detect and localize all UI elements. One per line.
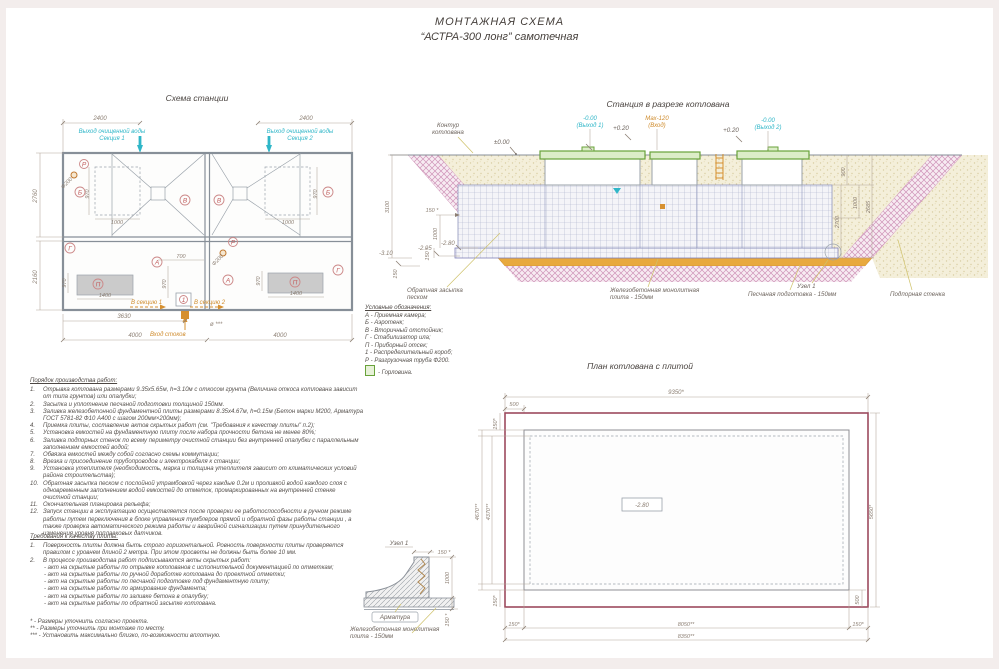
to-section1-label: В секцию 1 — [131, 300, 162, 306]
quality-bullet: - акт на скрытые работы по отрывке котло… — [30, 565, 364, 572]
footnote: *** - Установить максимально близко, по-… — [30, 633, 364, 640]
bottom-hatch-band — [505, 266, 865, 282]
legend: Условные обозначения: А - Приемная камер… — [365, 305, 565, 378]
slab-label-2: плита - 150мм — [610, 294, 654, 301]
lid-left-2 — [650, 152, 700, 159]
sand-prep-label: Песчаная подготовка - 150мм — [748, 291, 837, 298]
node-dim-150-top: 150 * — [438, 550, 452, 556]
legend-item: В - Вторичный отстойник; — [365, 328, 565, 336]
dim-3630: 3630 — [117, 314, 131, 320]
dim-150-bl: 150* — [493, 594, 499, 606]
pit-cross-section-drawing: Станция в разрезе котлована — [379, 99, 988, 301]
dim-500-top: 500 — [509, 402, 519, 408]
quality-item: 2.В процессе производства работ подписыв… — [30, 558, 364, 565]
lid-left-1 — [540, 151, 645, 159]
pit-plan-title: План котлована с плитой — [587, 361, 693, 371]
outlet1-label-line1: Выход очищенной воды — [79, 128, 146, 135]
procedure-step: 9.Установка утеплителя (необходимость, м… — [30, 466, 364, 480]
level-p020-left: +0.20 — [613, 125, 629, 132]
dim-970-tl: 970 — [85, 188, 91, 198]
dim-4670: 4670** — [475, 503, 481, 520]
dim-4000-right: 4000 — [273, 333, 287, 339]
dim-2760: 2760 — [33, 189, 39, 204]
riser-left-2 — [652, 159, 697, 185]
footnote: ** - Размеры уточнить при монтаже по мес… — [30, 626, 364, 633]
dim-970-center: 970 — [162, 278, 168, 288]
procedure-step: 2.Засыпка и уплотнение песчаной подготов… — [30, 402, 364, 409]
procedure-step: 7.Обвязка емкостей между собой согласно … — [30, 452, 364, 459]
marker-G-right: Г — [336, 268, 340, 275]
dim-2700: 2700 — [835, 215, 841, 229]
marker-V-left: В — [183, 198, 188, 205]
level-out1-a: -0.00 — [583, 116, 597, 122]
legend-item: Б - Аэротенк; — [365, 320, 565, 328]
marker-R-right: Р — [231, 240, 236, 247]
dim-150-tl: 150* — [493, 417, 499, 429]
footnotes: * - Размеры уточнить согласно проекта. *… — [30, 619, 364, 641]
retaining-wall-section — [366, 557, 429, 598]
dim-1400-right: 1400 — [290, 291, 303, 297]
quality-section: Требования к качеству плиты: 1.Поверхнос… — [30, 534, 364, 608]
dim-1000-right: 1000 — [282, 220, 295, 226]
quality-title: Требования к качеству плиты: — [30, 534, 364, 541]
marker-V-right: В — [217, 198, 222, 205]
dim-9350: 9350* — [668, 390, 684, 396]
dim-150-layer: 150 — [393, 268, 399, 278]
footnote: * - Размеры уточнить согласно проекта. — [30, 619, 364, 626]
quality-item: 1.Поверхность плиты должна быть строго г… — [30, 543, 364, 557]
legend-item: Г - Стабилизатор ила; — [365, 335, 565, 343]
dim-150s-top: 150 * — [426, 208, 440, 214]
to-section2-label: В секцию 2 — [194, 300, 226, 306]
procedure-step: 6.Заливка подпорных стенок по всему пери… — [30, 438, 364, 452]
marker-P-left: П — [96, 282, 101, 289]
dim-3100: 3100 — [385, 200, 391, 213]
foundation-slab — [455, 248, 838, 258]
backfill-label-1: Обратная засыпка — [407, 287, 463, 294]
level-out2-b: (Выход 2) — [754, 125, 781, 131]
level-max120-inlet: (Вход) — [648, 123, 665, 129]
marker-B-right: Б — [326, 190, 330, 197]
dim-1000-sec: 1000 — [853, 196, 859, 209]
slab-label-1: Железобетонная монолитная — [609, 287, 700, 294]
marker-P-right: П — [293, 280, 298, 287]
legend-item: 1 - Распределительный короб; — [365, 350, 565, 358]
lid-right-vent — [768, 147, 778, 151]
node-detail-title: Узел 1 — [389, 540, 409, 547]
quality-bullet: - акт на скрытые работы по армирование ф… — [30, 586, 364, 593]
dia-note: ø *** — [210, 322, 223, 328]
dim-970-bl: 970 — [62, 277, 68, 287]
legend-item-gorlovina: - Горловина. — [365, 365, 565, 378]
outlet2-label-line1: Выход очищенной воды — [267, 128, 334, 135]
rebar-label: Арматура — [379, 614, 411, 621]
dim-970-br: 970 — [256, 275, 262, 285]
dim-1000-left-sec: 1000 — [433, 227, 439, 240]
procedure-step: 10.Обратная засыпка песком с послойной у… — [30, 481, 364, 503]
inlet-pipe-mark-icon — [660, 204, 665, 209]
level-m280: -2.80 — [441, 241, 455, 247]
slab-outline — [524, 430, 849, 590]
marker-G-left: Г — [68, 246, 72, 253]
outlet1-stub — [139, 136, 142, 145]
retaining-wall-label: Подпорная стенка — [890, 291, 946, 298]
marker-1: 1 — [182, 297, 186, 304]
dim-970-tr: 970 — [313, 188, 319, 198]
pit-plan-drawing: План котлована с плитой 9350* 500 -2.80 … — [475, 361, 880, 642]
lid-left-1-vent — [582, 147, 594, 151]
level-max120: Мах-120 — [645, 116, 669, 122]
sand-prep-layer — [498, 258, 872, 266]
pit-contour-label-1: Контур — [437, 122, 460, 129]
station-plan-title: Схема станции — [166, 93, 229, 103]
tank-body-mesh — [458, 185, 832, 248]
dim-150-bottom-right: 150* — [852, 622, 864, 628]
dim-5650: 5650* — [869, 504, 875, 519]
drawing-title: МОНТАЖНАЯ СХЕМА “АСТРА-300 лонг” самотеч… — [0, 16, 999, 43]
level-000: ±0.00 — [494, 139, 510, 146]
procedure-step: 3.Заливка железобетонной фундаментной пл… — [30, 409, 364, 423]
marker-B-left: Б — [78, 190, 82, 197]
outlet2-label-line2: Секция 2 — [287, 136, 313, 142]
legend-title: Условные обозначения: — [365, 305, 565, 313]
procedure-step: 1.Отрывка котлована размерами 9.35х5.65м… — [30, 387, 364, 401]
neck-symbol-icon — [365, 365, 375, 376]
outlet2-stub — [268, 136, 271, 145]
station-plan-drawing: Схема станции 2400 2400 Выход очищенной … — [33, 93, 354, 342]
dim-900: 900 — [841, 166, 847, 176]
quality-bullet: - акт на скрытые работы по заливке бетон… — [30, 594, 364, 601]
dim-150-bottom-left: 150* — [508, 622, 520, 628]
dim-500-right: 500 — [855, 594, 861, 604]
dim-150s-slab: 150 * — [425, 247, 431, 261]
dim-2400-right: 2400 — [298, 116, 313, 122]
procedure-step: 11.Окончательная планировка рельефа; — [30, 502, 364, 509]
riser-left-1 — [545, 159, 640, 185]
procedure-title: Порядок производства работ: — [30, 378, 364, 385]
quality-bullets: - акт на скрытые работы по отрывке котло… — [30, 565, 364, 608]
unload-pipe-icon-left — [71, 172, 77, 178]
level-out2-a: -0.00 — [761, 118, 775, 124]
marker-R-left: Р — [82, 162, 87, 169]
node-dim-150-bottom: 150 * — [445, 613, 451, 627]
dim-8050: 8050** — [678, 622, 695, 628]
inlet-label: Вход стоков — [150, 332, 186, 338]
dim-2685: 2685 — [866, 200, 872, 214]
dim-2160: 2160 — [33, 270, 39, 285]
legend-item: А - Приемная камера; — [365, 313, 565, 321]
outlet1-label-line2: Секция 1 — [99, 136, 124, 142]
level-m310: -3.10 — [379, 251, 393, 257]
level-out1-b: (Выход 1) — [576, 123, 603, 129]
riser-right — [742, 159, 802, 185]
lid-right — [737, 151, 809, 159]
node-dim-1000: 1000 — [445, 571, 451, 584]
outlet2-arrow-icon — [266, 145, 272, 153]
quality-bullet: - акт на скрытые работы по песчаной подг… — [30, 579, 364, 586]
backfill-label-2: песком — [407, 294, 428, 301]
quality-bullet: - акт на скрытые работы по обратной засы… — [30, 601, 364, 608]
legend-item: П - Приборный отсек; — [365, 343, 565, 351]
marker-A-right: А — [225, 278, 230, 285]
node1-label: Узел 1 — [796, 283, 816, 290]
dim-700: 700 — [176, 254, 186, 260]
level-m280-plan: -2.80 — [635, 503, 649, 509]
pit-contour-label-2: котлована — [432, 129, 464, 136]
legend-item: Р - Разгрузочная труба Ф200. — [365, 358, 565, 366]
drawing-title-line1: МОНТАЖНАЯ СХЕМА — [0, 16, 999, 28]
dim-4370: 4370** — [486, 503, 492, 520]
instrument-bay-left — [77, 275, 133, 295]
node-detail-drawing: Узел 1 150 * 1000 150 * Арматура Железоб… — [349, 540, 458, 640]
procedure-step: 5.Установка емкостей на фундаментную пли… — [30, 430, 364, 437]
slab-section — [364, 598, 454, 607]
dim-8350: 8350** — [678, 634, 695, 640]
dim-1400-left: 1400 — [99, 293, 112, 299]
dim-4000-left: 4000 — [128, 333, 142, 339]
marker-A-left: А — [154, 260, 159, 267]
level-p020-right: +0.20 — [723, 127, 739, 134]
drawing-title-line2: “АСТРА-300 лонг” самотечная — [0, 31, 999, 43]
outlet1-arrow-icon — [137, 145, 143, 153]
procedure-section: Порядок производства работ: 1.Отрывка ко… — [30, 378, 364, 538]
dim-2400-left: 2400 — [92, 116, 107, 122]
dim-1000-left: 1000 — [111, 220, 124, 226]
cross-section-title: Станция в разрезе котлована — [607, 99, 730, 109]
